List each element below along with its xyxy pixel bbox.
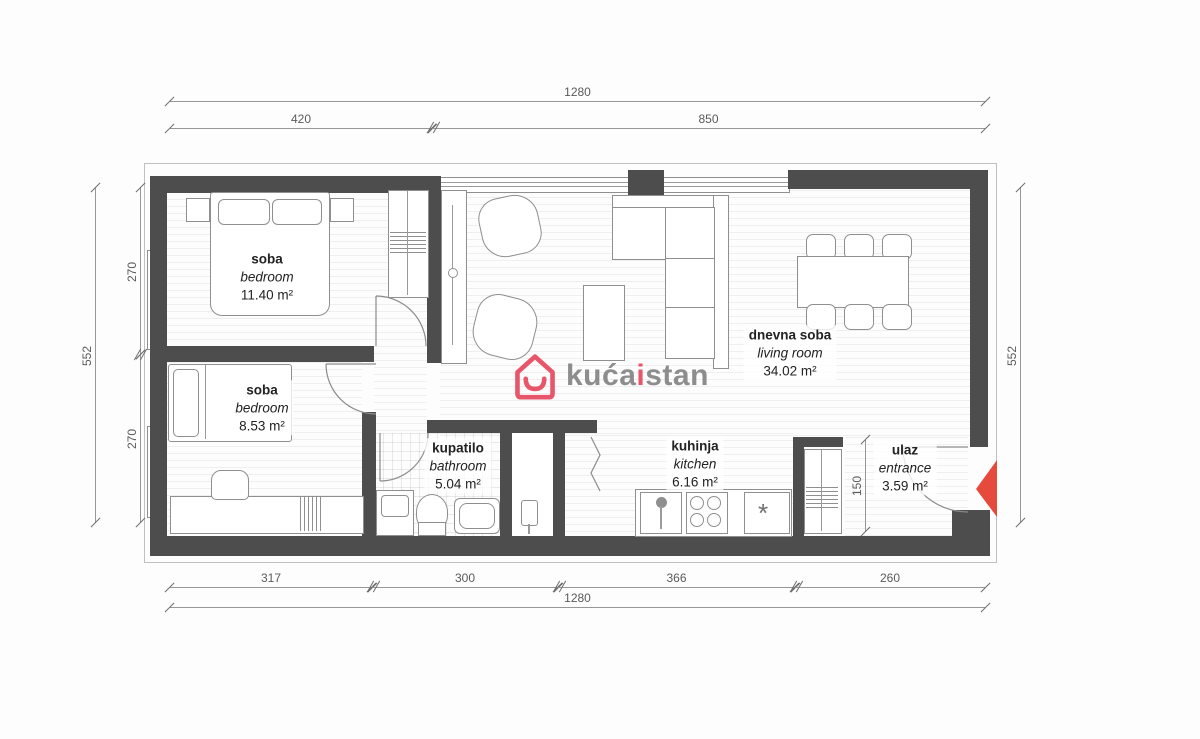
room-area: 3.59 m²	[879, 477, 932, 495]
room-area: 11.40 m²	[240, 286, 293, 304]
single-bed-line	[205, 365, 206, 439]
dim-bottom-300-label: 300	[455, 571, 475, 585]
dim-left-270-upper: 270	[140, 188, 141, 355]
room-name-sr: soba	[240, 250, 293, 268]
wall-closet-left	[793, 437, 804, 536]
floor-plan: * soba bedroom 11.40 m² soba bedroom 8.5…	[0, 0, 1200, 739]
room-name-sr: kupatilo	[429, 439, 486, 457]
room-label-bedroom-1: soba bedroom 11.40 m²	[235, 249, 298, 304]
dim-left-total: 552	[95, 188, 96, 523]
kucaistan-logo: kućaistan	[511, 349, 709, 403]
stove-burner	[707, 496, 721, 510]
room-label-entrance: ulaz entrance 3.59 m²	[874, 440, 937, 495]
room-name-sr: kuhinja	[671, 437, 718, 455]
dim-bottom-260: 260	[795, 587, 985, 588]
wall-top-right	[788, 170, 988, 189]
utility-boiler	[521, 500, 538, 526]
wardrobe-entrance-shelves	[806, 487, 838, 509]
radiator-bedroom-2	[300, 497, 322, 531]
logo-text-accent: i	[636, 359, 645, 392]
gas-connection-icon: *	[758, 498, 768, 529]
dining-chair	[882, 304, 912, 330]
single-bed-pillow	[173, 369, 199, 437]
room-label-bedroom-2: soba bedroom 8.53 m²	[230, 380, 293, 435]
wall-bedroom2-hall	[362, 412, 376, 536]
dining-chair	[844, 304, 874, 330]
sofa-back-right	[713, 195, 729, 369]
window-living-room-band	[440, 177, 790, 193]
wardrobe-shelves	[390, 232, 426, 254]
room-name-en: bedroom	[240, 268, 293, 286]
dining-table	[797, 256, 909, 308]
wall-bedroom1-living	[427, 176, 441, 363]
dim-top-420: 420	[170, 128, 432, 129]
stove-burner	[690, 513, 704, 527]
logo-wordmark: kućaistan	[566, 361, 709, 391]
floor-hallway	[374, 346, 427, 433]
pillow-right	[272, 199, 322, 225]
logo-text-main: kuća	[566, 359, 636, 392]
dim-bottom-300: 300	[372, 587, 558, 588]
dim-bottom-366: 366	[558, 587, 795, 588]
wall-closet-top	[793, 437, 843, 447]
dim-top-total-label: 1280	[564, 85, 591, 99]
room-name-sr: dnevna soba	[749, 326, 832, 344]
wall-column-top	[628, 170, 664, 197]
stove-burner	[690, 496, 704, 510]
dim-break	[364, 581, 382, 593]
wall-bathroom-right	[500, 433, 512, 536]
wall-bottom	[150, 536, 990, 556]
dim-entrance-150-label: 150	[850, 476, 864, 496]
desk-chair	[211, 470, 249, 500]
dim-bottom-317: 317	[170, 587, 372, 588]
dim-break	[787, 581, 805, 593]
wall-bathroom-top	[427, 420, 597, 433]
room-name-en: entrance	[879, 459, 932, 477]
bathroom-sink-basin	[381, 495, 409, 517]
sofa-chaise	[612, 207, 667, 260]
tv-cabinet-knob	[448, 268, 458, 278]
dim-right-total-label: 552	[1005, 345, 1019, 365]
kitchen-faucet	[660, 506, 662, 529]
dim-top-850: 850	[432, 128, 985, 129]
dim-top-420-label: 420	[291, 112, 311, 126]
room-area: 6.16 m²	[671, 473, 718, 491]
room-name-sr: ulaz	[879, 441, 932, 459]
room-name-en: kitchen	[671, 455, 718, 473]
bathtub-inner	[459, 503, 495, 529]
room-area: 5.04 m²	[429, 475, 486, 493]
logo-text-suffix: stan	[645, 359, 709, 392]
room-name-sr: soba	[235, 381, 288, 399]
dim-right-total: 552	[1020, 188, 1021, 523]
wardrobe-entrance-divider	[821, 450, 822, 531]
dim-bottom-366-label: 366	[666, 571, 686, 585]
room-name-en: bathroom	[429, 457, 486, 475]
wall-right	[970, 170, 988, 447]
nightstand-right	[330, 198, 354, 222]
dim-break	[424, 122, 442, 134]
utility-boiler-stem	[528, 524, 530, 534]
dim-bottom-total: 1280	[170, 607, 985, 608]
dim-break	[131, 349, 149, 361]
desk	[170, 496, 364, 534]
sofa-seat	[665, 207, 715, 260]
dim-top-850-label: 850	[698, 112, 718, 126]
wall-between-bedrooms	[150, 346, 374, 362]
dim-left-270-lower: 270	[140, 355, 141, 523]
wall-right-lower	[952, 510, 990, 542]
dim-entrance-150: 150	[865, 440, 866, 532]
house-logo-icon	[511, 349, 559, 403]
room-name-en: bedroom	[235, 399, 288, 417]
room-label-bathroom: kupatilo bathroom 5.04 m²	[424, 438, 491, 493]
room-label-kitchen: kuhinja kitchen 6.16 m²	[666, 436, 723, 491]
stove-burner	[707, 513, 721, 527]
room-label-living-room: dnevna soba living room 34.02 m²	[744, 325, 837, 380]
wall-left	[150, 176, 167, 556]
wall-utility-right	[553, 433, 565, 536]
toilet-tank	[418, 522, 446, 536]
sofa-seat	[665, 258, 715, 309]
dim-bottom-317-label: 317	[261, 571, 281, 585]
dim-bottom-total-label: 1280	[564, 591, 591, 605]
wardrobe-divider	[407, 191, 408, 295]
dim-left-270-lower-label: 270	[125, 429, 139, 449]
pillow-left	[218, 199, 270, 225]
room-name-en: living room	[749, 344, 832, 362]
room-area: 8.53 m²	[235, 417, 288, 435]
dim-bottom-260-label: 260	[880, 571, 900, 585]
room-area: 34.02 m²	[749, 362, 832, 380]
dim-left-total-label: 552	[80, 345, 94, 365]
dim-left-270-upper-label: 270	[125, 261, 139, 281]
dim-top-total: 1280	[170, 101, 985, 102]
nightstand-left	[186, 198, 210, 222]
